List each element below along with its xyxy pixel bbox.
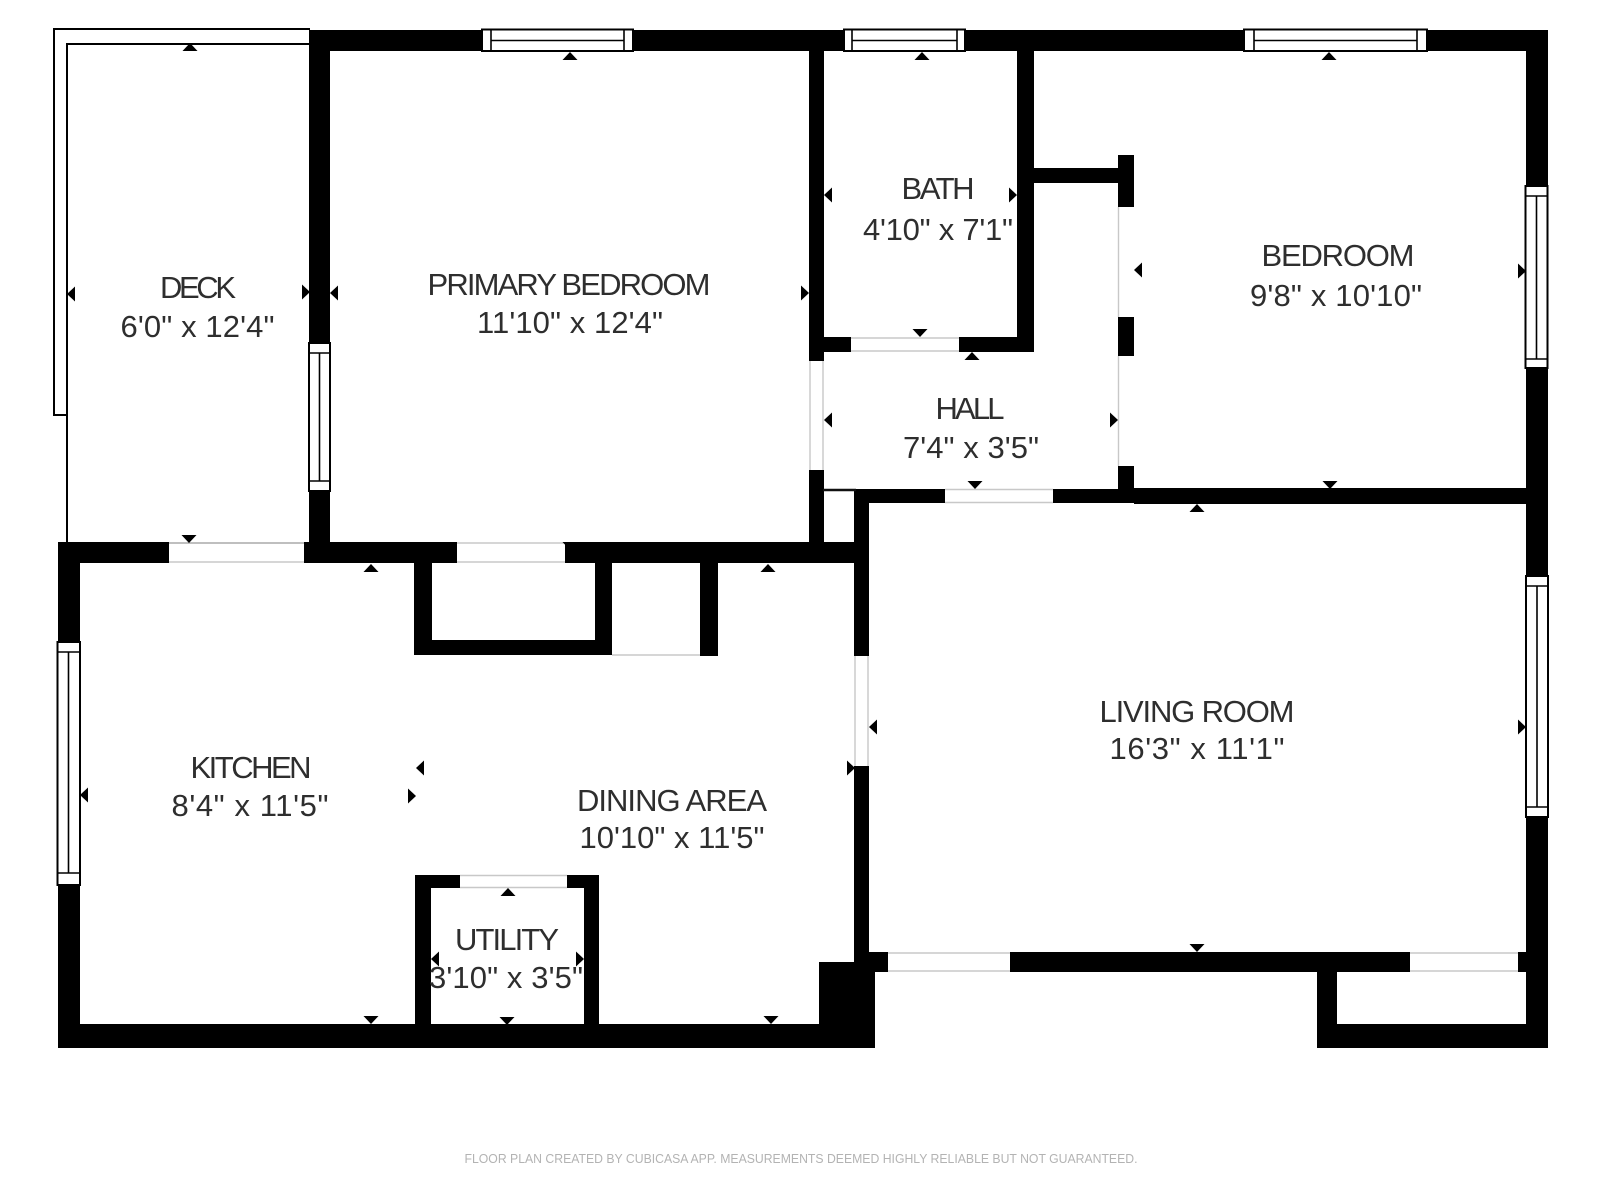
svg-text:11'10" x 12'4": 11'10" x 12'4" <box>477 305 663 340</box>
svg-text:DECK: DECK <box>160 270 236 305</box>
svg-text:8'4" x 11'5": 8'4" x 11'5" <box>172 788 329 823</box>
svg-text:7'4" x 3'5": 7'4" x 3'5" <box>903 430 1039 465</box>
svg-text:FLOOR PLAN CREATED BY CUBICASA: FLOOR PLAN CREATED BY CUBICASA APP. MEAS… <box>465 1151 1138 1166</box>
svg-text:10'10" x 11'5": 10'10" x 11'5" <box>580 820 765 855</box>
svg-text:3'10" x 3'5": 3'10" x 3'5" <box>429 960 583 995</box>
svg-text:DINING AREA: DINING AREA <box>577 783 767 818</box>
svg-text:PRIMARY BEDROOM: PRIMARY BEDROOM <box>428 267 711 302</box>
svg-text:BEDROOM: BEDROOM <box>1262 238 1415 273</box>
svg-text:BATH: BATH <box>902 171 975 206</box>
svg-text:KITCHEN: KITCHEN <box>191 750 312 785</box>
svg-text:UTILITY: UTILITY <box>455 922 559 957</box>
svg-text:6'0" x 12'4": 6'0" x 12'4" <box>121 309 275 344</box>
svg-text:LIVING ROOM: LIVING ROOM <box>1100 694 1295 729</box>
svg-text:9'8" x 10'10": 9'8" x 10'10" <box>1250 278 1422 313</box>
svg-text:HALL: HALL <box>936 391 1005 426</box>
svg-text:4'10" x 7'1": 4'10" x 7'1" <box>863 212 1013 247</box>
svg-text:16'3" x 11'1": 16'3" x 11'1" <box>1110 731 1285 766</box>
